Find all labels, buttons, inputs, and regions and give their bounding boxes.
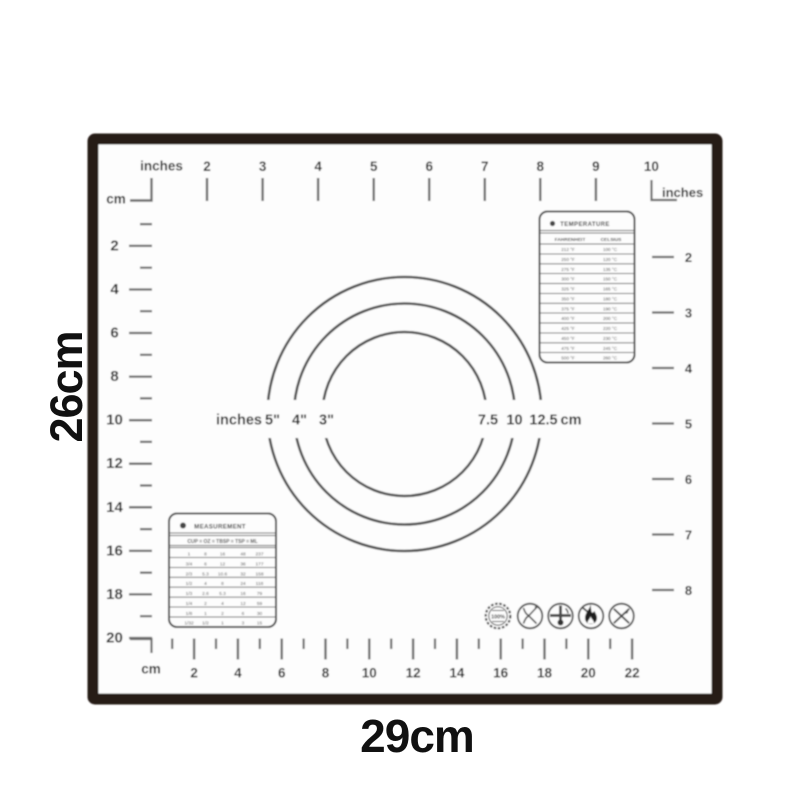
svg-text:TEMPERATURE: TEMPERATURE [560,222,610,228]
svg-text:1: 1 [188,551,191,557]
svg-text:1/2: 1/2 [202,621,209,627]
svg-text:1/3: 1/3 [186,591,193,597]
svg-text:4": 4" [292,413,307,429]
svg-text:1/8: 1/8 [186,611,193,617]
svg-text:260 °C: 260 °C [603,356,618,361]
svg-text:375 °F: 375 °F [561,306,575,311]
svg-text:10: 10 [644,159,659,174]
svg-text:177: 177 [255,561,263,567]
svg-text:8: 8 [204,551,207,557]
svg-text:1: 1 [221,621,224,627]
svg-text:FAHRENHEIT: FAHRENHEIT [555,237,586,243]
svg-text:10: 10 [362,666,377,681]
svg-text:2: 2 [190,666,198,681]
svg-text:2/3: 2/3 [186,571,193,577]
svg-text:30: 30 [257,611,263,617]
svg-text:2.6: 2.6 [202,591,209,597]
svg-text:5.3: 5.3 [219,591,226,597]
svg-text:450 °F: 450 °F [561,336,575,341]
svg-text:165 °C: 165 °C [603,287,618,292]
svg-text:5: 5 [370,159,378,174]
svg-text:79: 79 [257,591,263,597]
svg-text:6: 6 [242,611,245,617]
svg-text:6: 6 [204,561,207,567]
svg-text:425 °F: 425 °F [561,326,575,331]
svg-text:4: 4 [204,581,207,587]
svg-text:475 °F: 475 °F [561,346,575,351]
svg-text:220 °C: 220 °C [603,326,618,331]
svg-text:1/4: 1/4 [186,601,193,607]
svg-text:12: 12 [220,561,226,567]
svg-text:15: 15 [257,621,263,627]
svg-text:10: 10 [506,413,522,429]
svg-text:2: 2 [221,611,224,617]
svg-text:inches: inches [662,185,703,200]
svg-text:14: 14 [106,499,123,516]
svg-text:1: 1 [204,611,207,617]
svg-text:2: 2 [685,250,692,265]
svg-text:16: 16 [106,542,123,559]
svg-text:6: 6 [425,159,433,174]
svg-text:10: 10 [106,412,123,429]
svg-text:2: 2 [110,237,118,254]
svg-text:inches: inches [140,159,183,174]
svg-text:3: 3 [259,159,267,174]
svg-text:150 °C: 150 °C [603,277,618,282]
svg-text:6: 6 [110,325,118,342]
svg-text:6: 6 [278,666,286,681]
svg-text:350 °F: 350 °F [561,296,575,301]
svg-text:CELSIUS: CELSIUS [601,237,623,243]
svg-text:2: 2 [203,159,211,174]
svg-text:500 °F: 500 °F [561,356,575,361]
svg-text:16: 16 [240,591,246,597]
svg-text:12.5: 12.5 [529,413,557,429]
svg-text:118: 118 [256,581,264,587]
svg-text:16: 16 [220,551,226,557]
svg-text:3: 3 [685,306,692,321]
svg-text:1/32: 1/32 [184,621,194,627]
svg-text:275 °F: 275 °F [561,267,575,272]
svg-text:5: 5 [685,417,692,432]
svg-text:5": 5" [265,413,280,429]
svg-text:7: 7 [481,159,489,174]
svg-text:4: 4 [234,666,242,681]
svg-text:7.5: 7.5 [478,413,498,429]
svg-text:190 °C: 190 °C [603,306,618,311]
svg-text:180 °C: 180 °C [603,296,618,301]
svg-text:4: 4 [110,281,119,298]
svg-text:4: 4 [314,159,322,174]
svg-text:4: 4 [221,601,224,607]
svg-text:2: 2 [204,601,207,607]
svg-text:32: 32 [240,571,246,577]
svg-text:237: 237 [255,551,263,557]
svg-text:cm: cm [561,413,582,429]
svg-text:9: 9 [592,159,600,174]
svg-text:212 °F: 212 °F [561,247,575,252]
svg-text:cm: cm [106,192,126,207]
svg-text:3": 3" [319,413,334,429]
svg-text:200 °C: 200 °C [603,316,618,321]
svg-text:8: 8 [221,581,224,587]
svg-text:230 °C: 230 °C [603,336,618,341]
svg-text:135 °C: 135 °C [603,267,618,272]
svg-text:120 °C: 120 °C [603,257,618,262]
svg-text:MEASUREMENT: MEASUREMENT [194,524,246,531]
svg-text:100%: 100% [491,614,505,620]
svg-text:400 °F: 400 °F [561,316,575,321]
svg-text:20: 20 [581,666,596,681]
svg-text:24: 24 [240,581,246,587]
svg-text:14: 14 [449,666,465,681]
svg-text:7: 7 [685,528,692,543]
svg-text:20: 20 [106,630,123,647]
svg-text:inches: inches [216,413,262,429]
svg-text:1/2: 1/2 [186,581,193,587]
svg-text:8: 8 [322,666,330,681]
svg-text:CUP = OZ = TBSP = TSP = ML: CUP = OZ = TBSP = TSP = ML [187,539,257,545]
svg-text:300 °F: 300 °F [561,277,575,282]
svg-text:8: 8 [685,583,692,598]
svg-text:6: 6 [685,472,692,487]
svg-text:18: 18 [106,586,123,603]
svg-text:158: 158 [255,571,263,577]
svg-text:250 °F: 250 °F [561,257,575,262]
svg-text:48: 48 [240,551,246,557]
svg-text:5.3: 5.3 [202,571,209,577]
svg-text:18: 18 [537,666,553,681]
svg-text:36: 36 [240,561,246,567]
svg-text:325 °F: 325 °F [561,287,575,292]
svg-text:cm: cm [141,662,161,677]
svg-text:12: 12 [240,601,246,607]
svg-text:10.6: 10.6 [218,571,228,577]
svg-text:4: 4 [685,361,693,376]
svg-text:3: 3 [242,621,245,627]
svg-text:59: 59 [257,601,263,607]
svg-text:22: 22 [625,666,640,681]
svg-text:8: 8 [537,159,545,174]
svg-text:8: 8 [110,368,118,385]
svg-text:12: 12 [106,455,123,472]
svg-text:100 °C: 100 °C [603,247,618,252]
svg-text:245 °C: 245 °C [603,346,618,351]
svg-text:16: 16 [493,666,509,681]
svg-text:3/4: 3/4 [186,561,193,567]
svg-text:12: 12 [406,666,421,681]
